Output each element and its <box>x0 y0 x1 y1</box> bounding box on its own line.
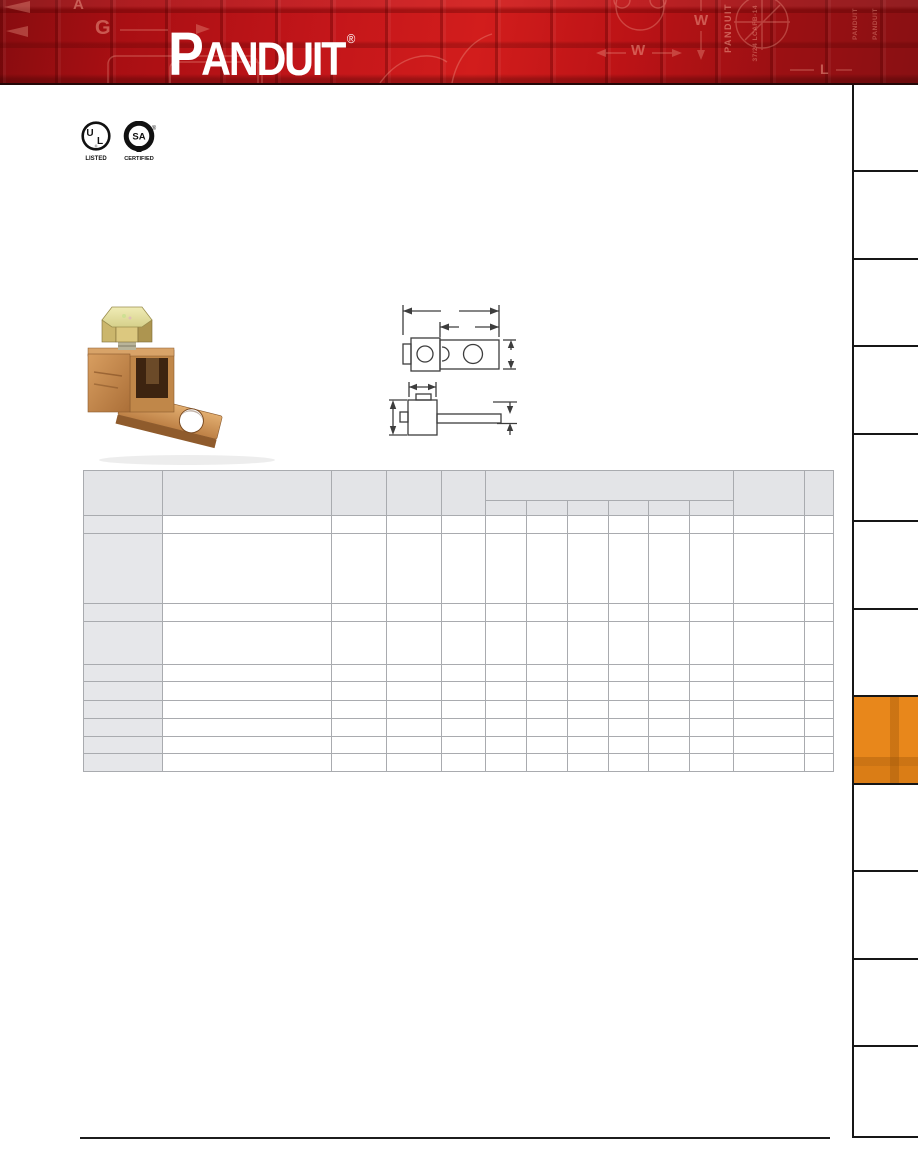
table-cell <box>609 516 649 534</box>
thumb-index-tab <box>854 610 918 697</box>
thumb-index-sidebar <box>852 85 918 1138</box>
table-cell <box>486 754 527 772</box>
svg-text:®: ® <box>152 125 157 132</box>
table-header-cell <box>84 471 163 516</box>
spec-table <box>83 470 834 772</box>
svg-text:®: ® <box>95 145 98 149</box>
table-cell <box>568 754 609 772</box>
table-cell <box>387 754 442 772</box>
table-cell <box>690 682 734 701</box>
thumb-index-tab <box>854 522 918 610</box>
registered-trademark-icon: ® <box>347 32 355 45</box>
panduit-logo-text: ANDUIT <box>201 35 344 82</box>
thumb-index-tab <box>854 1047 918 1138</box>
table-cell <box>690 665 734 682</box>
table-cell <box>805 737 834 754</box>
table-cell <box>734 719 805 737</box>
svg-text:SA: SA <box>132 132 145 143</box>
table-cell <box>332 754 387 772</box>
product-photo <box>72 292 287 467</box>
table-cell <box>332 622 387 665</box>
table-cell <box>163 534 332 604</box>
table-cell <box>609 719 649 737</box>
table-cell <box>442 665 486 682</box>
table-cell <box>387 665 442 682</box>
table-cell <box>527 701 568 719</box>
table-cell <box>649 682 690 701</box>
table-row <box>84 665 834 682</box>
table-cell <box>805 719 834 737</box>
table-cell <box>387 737 442 754</box>
table-cell <box>734 665 805 682</box>
table-row <box>84 516 834 534</box>
table-row <box>84 682 834 701</box>
table-header-cell <box>163 471 332 516</box>
watermark-vertical-part: 37/24 LCAFB-14 <box>753 5 760 62</box>
csa-certified-icon: SA ® CERTIFIED <box>120 121 162 163</box>
table-cell <box>734 516 805 534</box>
table-cell <box>734 604 805 622</box>
table-cell <box>84 665 163 682</box>
table-cell <box>486 534 527 604</box>
table-cell <box>805 534 834 604</box>
watermark-letter-g: G <box>95 18 111 38</box>
table-cell <box>486 719 527 737</box>
csa-caption: CERTIFIED <box>124 156 154 162</box>
watermark-vertical-brand: PANDUIT <box>724 3 733 53</box>
table-header-cell <box>486 471 734 501</box>
footer-rule <box>80 1137 830 1139</box>
table-cell <box>84 516 163 534</box>
table-cell <box>442 682 486 701</box>
table-cell <box>442 754 486 772</box>
table-header-cell <box>486 501 527 516</box>
table-cell <box>690 516 734 534</box>
ul-listed-icon: U L ® LISTED <box>78 121 114 163</box>
table-header-cell <box>527 501 568 516</box>
thumb-index-tab <box>854 347 918 435</box>
table-cell <box>805 622 834 665</box>
table-cell <box>332 665 387 682</box>
table-cell <box>690 719 734 737</box>
table-cell <box>649 534 690 604</box>
thumb-index-tab-active <box>854 697 918 785</box>
table-cell <box>442 737 486 754</box>
table-cell <box>609 754 649 772</box>
thumb-index-tab <box>854 172 918 260</box>
catalog-page: A G W W L PANDUIT 37/24 LCAFB-14 PANDUIT… <box>0 0 918 1175</box>
thumb-index-tab <box>854 435 918 522</box>
panduit-logo-text: P <box>168 24 201 85</box>
table-cell <box>332 604 387 622</box>
watermark-letter-a: A <box>73 0 84 12</box>
table-row <box>84 719 834 737</box>
table-cell <box>805 701 834 719</box>
table-cell <box>486 701 527 719</box>
table-cell <box>568 622 609 665</box>
table-cell <box>805 516 834 534</box>
table-cell <box>734 622 805 665</box>
watermark-letter-l: L <box>820 62 829 76</box>
table-cell <box>568 665 609 682</box>
table-cell <box>387 534 442 604</box>
table-cell <box>84 534 163 604</box>
table-row <box>84 534 834 604</box>
table-cell <box>609 604 649 622</box>
table-cell <box>163 682 332 701</box>
table-row <box>84 701 834 719</box>
table-cell <box>332 682 387 701</box>
table-cell <box>568 719 609 737</box>
svg-text:L: L <box>97 136 103 147</box>
table-cell <box>84 682 163 701</box>
dimension-drawing <box>383 298 555 446</box>
table-cell <box>609 622 649 665</box>
table-cell <box>332 701 387 719</box>
table-cell <box>568 534 609 604</box>
table-cell <box>387 604 442 622</box>
table-row <box>84 737 834 754</box>
table-cell <box>649 622 690 665</box>
table-cell <box>649 737 690 754</box>
table-cell <box>527 622 568 665</box>
table-cell <box>84 604 163 622</box>
table-cell <box>609 665 649 682</box>
table-cell <box>527 682 568 701</box>
svg-text:U: U <box>86 128 93 139</box>
thumb-index-tab <box>854 872 918 960</box>
table-cell <box>649 604 690 622</box>
table-cell <box>387 622 442 665</box>
table-header-cell <box>332 471 387 516</box>
table-cell <box>332 516 387 534</box>
certification-marks: U L ® LISTED SA ® CERTIFIED <box>78 121 162 163</box>
table-cell <box>332 719 387 737</box>
watermark-vertical-brand: PANDUIT <box>853 8 860 40</box>
table-cell <box>805 665 834 682</box>
table-cell <box>486 604 527 622</box>
table-row <box>84 604 834 622</box>
table-cell <box>387 516 442 534</box>
table-cell <box>568 682 609 701</box>
table-header-cell <box>734 471 805 516</box>
table-cell <box>734 701 805 719</box>
table-cell <box>442 622 486 665</box>
table-cell <box>387 682 442 701</box>
table-cell <box>805 604 834 622</box>
table-cell <box>332 737 387 754</box>
table-cell <box>84 754 163 772</box>
table-cell <box>609 682 649 701</box>
table-header-cell <box>609 501 649 516</box>
table-cell <box>568 516 609 534</box>
table-row <box>84 754 834 772</box>
table-header-cell <box>690 501 734 516</box>
thumb-index-tab <box>854 960 918 1047</box>
table-cell <box>649 701 690 719</box>
table-cell <box>568 604 609 622</box>
table-cell <box>609 701 649 719</box>
table-header-cell <box>387 471 442 516</box>
table-cell <box>527 737 568 754</box>
panduit-logo: PANDUIT ® <box>168 24 355 85</box>
table-cell <box>163 719 332 737</box>
thumb-index-tab <box>854 260 918 347</box>
table-cell <box>609 737 649 754</box>
table-cell <box>84 719 163 737</box>
table-cell <box>527 534 568 604</box>
table-cell <box>163 754 332 772</box>
table-cell <box>690 737 734 754</box>
table-cell <box>649 516 690 534</box>
table-cell <box>734 534 805 604</box>
table-cell <box>163 516 332 534</box>
table-cell <box>734 682 805 701</box>
table-header-cell <box>568 501 609 516</box>
table-cell <box>84 737 163 754</box>
watermark-letter-w: W <box>631 43 645 58</box>
table-cell <box>649 754 690 772</box>
table-cell <box>387 719 442 737</box>
table-cell <box>486 665 527 682</box>
table-cell <box>690 534 734 604</box>
table-cell <box>690 754 734 772</box>
table-cell <box>690 622 734 665</box>
watermark-vertical-brand: PANDUIT <box>873 8 880 40</box>
table-cell <box>690 701 734 719</box>
table-cell <box>163 737 332 754</box>
table-cell <box>84 701 163 719</box>
table-cell <box>649 719 690 737</box>
table-cell <box>568 701 609 719</box>
table-cell <box>609 534 649 604</box>
watermark-letter-w: W <box>694 13 708 28</box>
table-cell <box>734 737 805 754</box>
table-cell <box>387 701 442 719</box>
table-cell <box>442 516 486 534</box>
table-cell <box>163 604 332 622</box>
table-cell <box>527 754 568 772</box>
header-line-art <box>0 0 918 83</box>
table-header-cell <box>805 471 834 516</box>
table-cell <box>649 665 690 682</box>
table-cell <box>163 701 332 719</box>
table-cell <box>332 534 387 604</box>
table-header-cell <box>649 501 690 516</box>
table-row <box>84 622 834 665</box>
table-cell <box>442 604 486 622</box>
thumb-index-tab <box>854 85 918 172</box>
table-cell <box>442 534 486 604</box>
table-cell <box>442 701 486 719</box>
table-cell <box>527 516 568 534</box>
table-cell <box>163 622 332 665</box>
thumb-index-tab <box>854 785 918 872</box>
table-cell <box>486 516 527 534</box>
table-cell <box>163 665 332 682</box>
table-cell <box>527 604 568 622</box>
table-cell <box>527 719 568 737</box>
table-cell <box>734 754 805 772</box>
table-cell <box>568 737 609 754</box>
table-cell <box>690 604 734 622</box>
table-cell <box>805 682 834 701</box>
table-header-cell <box>442 471 486 516</box>
table-cell <box>486 682 527 701</box>
table-cell <box>84 622 163 665</box>
table-cell <box>527 665 568 682</box>
table-cell <box>486 622 527 665</box>
table-cell <box>486 737 527 754</box>
table-cell <box>805 754 834 772</box>
header-banner: A G W W L PANDUIT 37/24 LCAFB-14 PANDUIT… <box>0 0 918 85</box>
ul-caption: LISTED <box>85 156 107 162</box>
table-cell <box>442 719 486 737</box>
